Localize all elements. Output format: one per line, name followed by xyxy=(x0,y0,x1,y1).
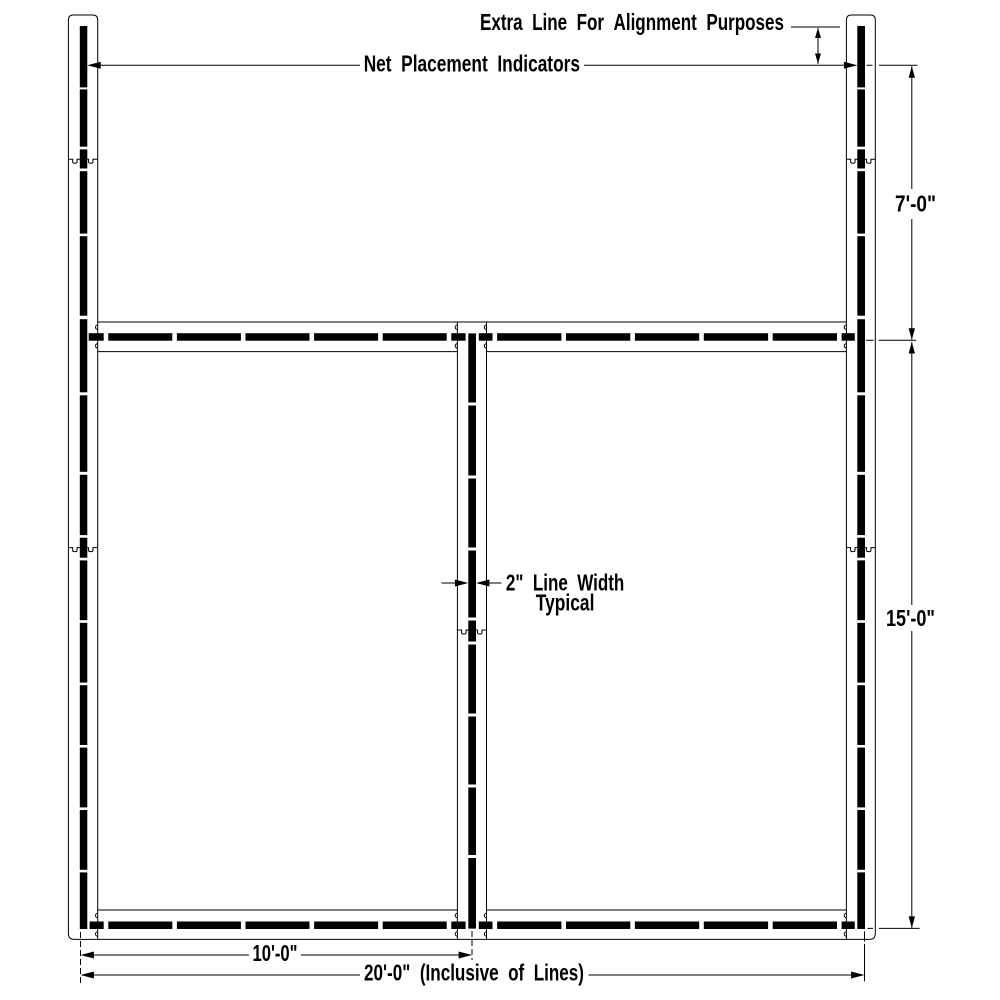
svg-text:7'-0": 7'-0" xyxy=(895,191,936,217)
svg-text:20'-0" (Inclusive of Lines): 20'-0" (Inclusive of Lines) xyxy=(364,960,584,986)
svg-text:Typical: Typical xyxy=(536,590,595,616)
svg-text:10'-0": 10'-0" xyxy=(253,940,298,966)
svg-text:15'-0": 15'-0" xyxy=(886,605,935,631)
svg-text:Net Placement Indicators: Net Placement Indicators xyxy=(364,51,580,77)
svg-text:Extra Line For Alignment P: Extra Line For Alignment Purposes xyxy=(480,9,784,35)
